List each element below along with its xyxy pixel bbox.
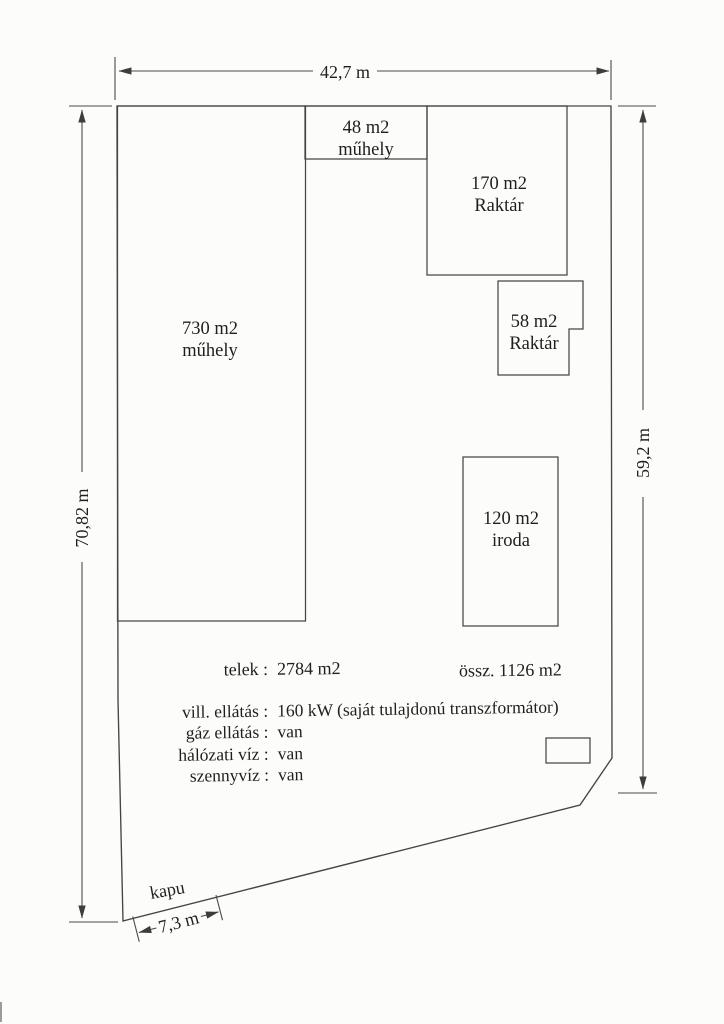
building-170: 170 m2 Raktár — [427, 106, 567, 275]
right-dimension: 59,2 m — [618, 106, 657, 793]
gate-dimension-tick-right — [216, 895, 223, 920]
building-48-use: műhely — [338, 140, 394, 160]
gate-dimension-line-right — [201, 912, 218, 917]
building-170-use: Raktár — [474, 196, 523, 216]
left-height-label: 70,82 m — [72, 488, 92, 547]
utility-water-value: van — [278, 743, 304, 763]
site-plan-drawing: 730 m2 műhely 48 m2 műhely 170 m2 Raktár… — [0, 0, 724, 1024]
utility-electric-label: vill. ellátás : — [98, 701, 268, 725]
plot-area-value: 2784 m2 — [277, 658, 341, 679]
utility-sewage-label: szennyvíz : — [99, 765, 269, 789]
building-58-area: 58 m2 — [511, 312, 558, 332]
building-730-area: 730 m2 — [182, 319, 238, 339]
plot-area-line: telek :2784 m2 — [98, 658, 341, 682]
gate-dimension-line-left — [139, 928, 156, 933]
utility-water-label: hálózati víz : — [99, 743, 269, 767]
total-built-area: össz. 1126 m2 — [459, 659, 562, 681]
building-730-outline — [118, 106, 306, 621]
top-dimension: 42,7 m — [115, 57, 611, 100]
top-width-label: 42,7 m — [320, 62, 370, 82]
gate-dimension: 7,3 m — [133, 895, 223, 943]
building-730-use: műhely — [182, 341, 238, 361]
building-170-area: 170 m2 — [471, 174, 527, 194]
building-48: 48 m2 műhely — [305, 106, 427, 160]
building-58: 58 m2 Raktár — [498, 281, 583, 375]
utility-gas-label: gáz ellátás : — [98, 722, 268, 746]
site-plan-page: 730 m2 műhely 48 m2 műhely 170 m2 Raktár… — [0, 0, 724, 1024]
right-height-label: 59,2 m — [633, 428, 653, 478]
utilities-block: vill. ellátás :160 kW (saját tulajdonú t… — [98, 697, 560, 789]
building-120-area: 120 m2 — [483, 509, 539, 529]
gate-width-label: 7,3 m — [156, 907, 201, 937]
utility-electric-value: 160 kW (saját tulajdonú transzformátor) — [277, 697, 559, 721]
building-730: 730 m2 műhely — [118, 106, 306, 621]
scan-edge-artifact — [0, 1002, 2, 1022]
gate-dimension-tick-left — [133, 917, 140, 942]
gate-label: kapu — [148, 877, 186, 903]
building-48-area: 48 m2 — [343, 118, 390, 138]
building-120: 120 m2 iroda — [463, 457, 558, 626]
building-120-use: iroda — [492, 531, 530, 551]
building-58-use: Raktár — [509, 334, 558, 354]
utility-gas-value: van — [277, 721, 303, 741]
left-dimension: 70,82 m — [69, 106, 118, 922]
plot-area-label: telek : — [98, 659, 268, 682]
utility-sewage-value: van — [278, 764, 304, 784]
